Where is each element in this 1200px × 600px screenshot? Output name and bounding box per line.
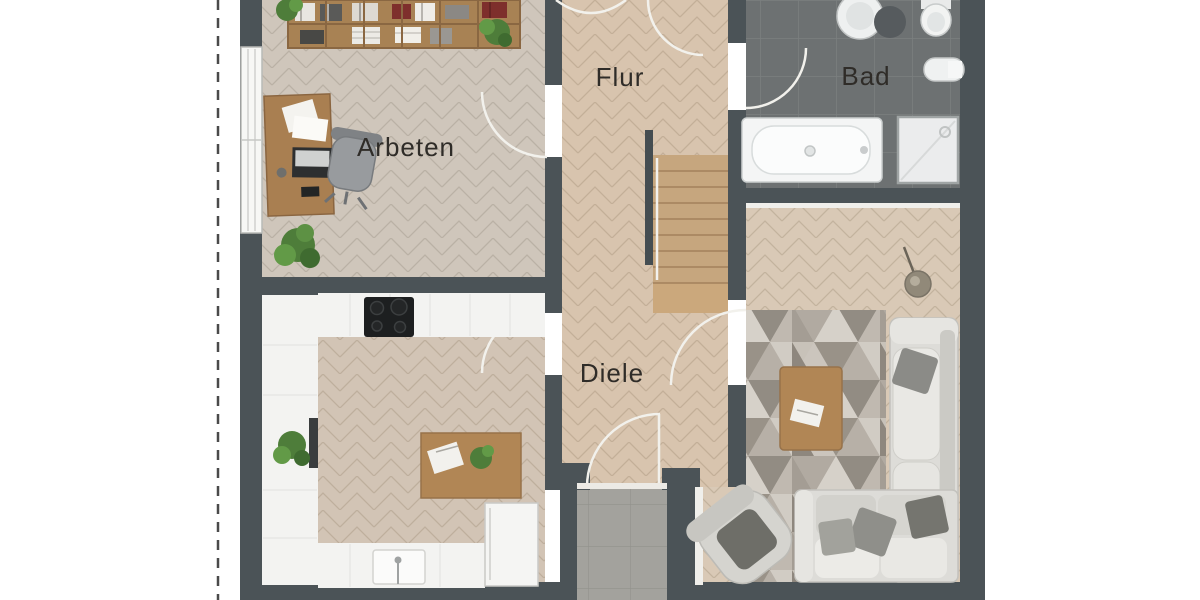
toilet [921,0,951,36]
cooktop [364,297,414,337]
office-bookshelf [276,0,520,48]
label-lower-hallway: Diele [580,358,644,388]
floor-plan-image: Arbeten Flur Bad Diele [0,0,1200,600]
floor-plan-svg: Arbeten Flur Bad Diele [0,0,1200,600]
papers [292,116,328,142]
faucet [395,557,402,564]
label-upper-hallway: Flur [596,62,645,92]
wall-office-kitchen [240,277,560,295]
sofa-pillow [818,518,856,556]
wall-outer-bottom-right [667,582,985,600]
office-window [241,47,262,233]
label-bathroom: Bad [841,61,890,91]
phone [301,186,319,197]
bathtub-faucet [860,146,868,154]
label-office: Arbeten [357,132,455,162]
built-in-oven-slot [309,418,318,468]
laptop [292,147,333,178]
kitchen-counter-top [318,293,545,337]
sofa-pillow [904,494,949,539]
wall-bathroom-living [728,188,960,203]
entrance-vestibule-floor [577,487,667,600]
wall-outer-right [960,0,985,600]
wall-sink [924,58,964,81]
shower [898,117,958,183]
bathtub [742,118,882,182]
stair-wall [645,130,653,265]
coffee-table [780,367,842,450]
bathtub-drain [805,146,815,156]
staircase [645,130,728,313]
office-desk [264,94,335,216]
kitchen-table [421,433,521,498]
kitchen-sink [373,550,425,584]
entrance-threshold [577,483,667,489]
trim-living-top [746,203,960,208]
fridge [485,503,538,586]
